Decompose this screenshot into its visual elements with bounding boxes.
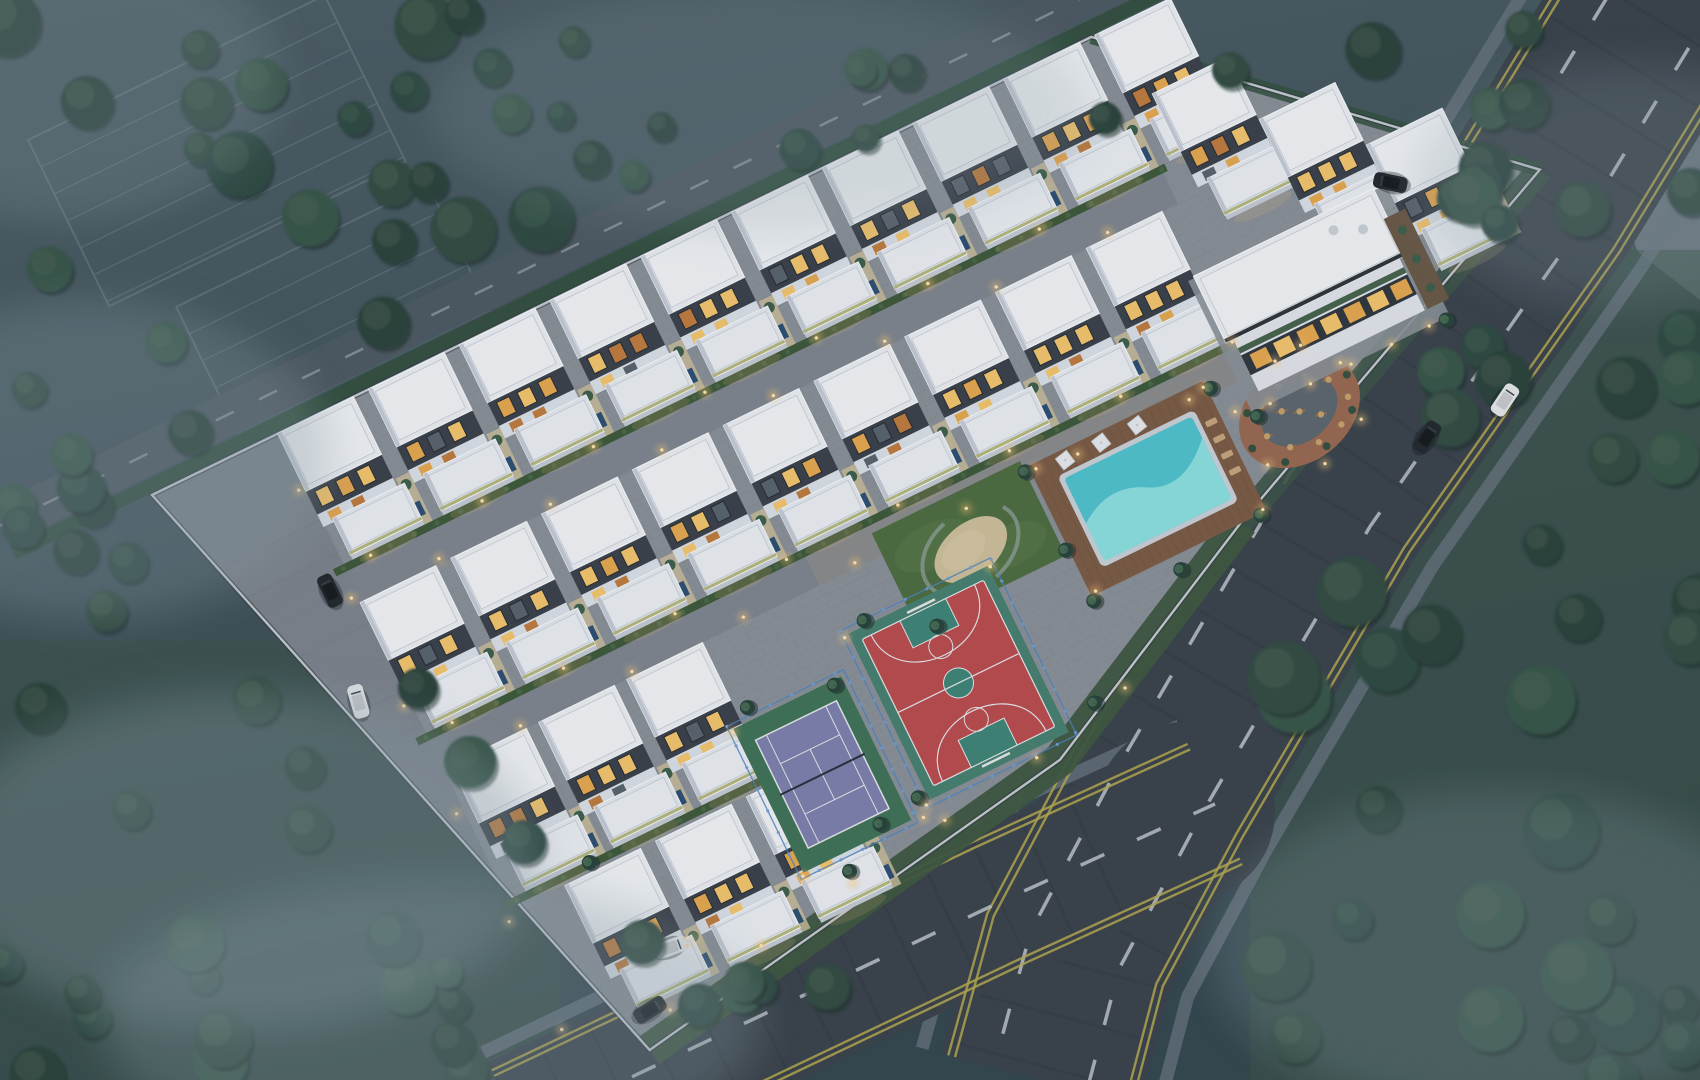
dusk-tint: [0, 0, 1700, 1080]
aerial-villa-community-render: [0, 0, 1700, 1080]
fog-layer: [0, 0, 1700, 1080]
scene-svg: [0, 0, 1700, 1080]
